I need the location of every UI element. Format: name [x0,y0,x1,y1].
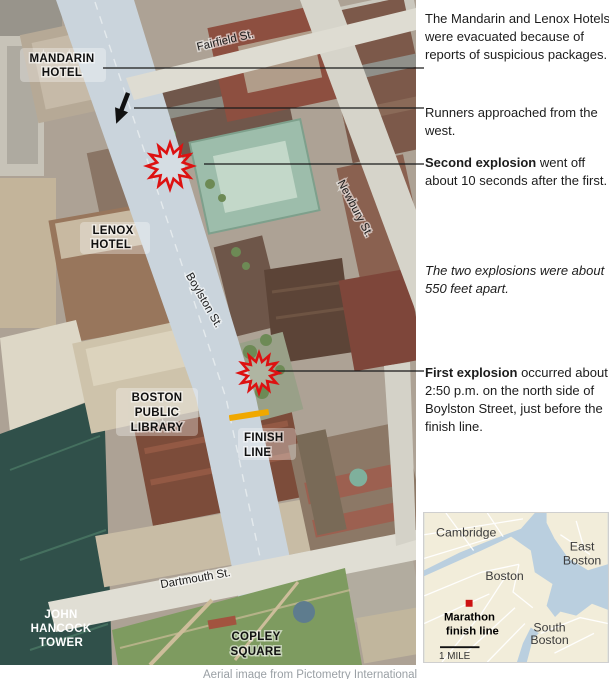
news-graphic: MANDARIN HOTEL LENOX HOTEL BOSTON PUBLIC… [0,0,609,679]
svg-text:HOTEL: HOTEL [91,239,131,251]
note-first-explosion: First explosion occurred about 2:50 p.m.… [425,364,609,436]
svg-text:TOWER: TOWER [39,637,83,649]
svg-text:HANCOCK: HANCOCK [31,623,92,635]
locator-inset-map: Cambridge Boston East Boston South Bosto… [423,512,609,663]
note-second-explosion: Second explosion went off about 10 secon… [425,154,609,190]
svg-text:PUBLIC: PUBLIC [135,407,180,419]
label-mandarin-hotel: MANDARIN [29,53,94,65]
label-copley-square: COPLEY [231,631,280,643]
inset-label-boston: Boston [485,569,524,583]
note-distance-apart: The two explosions were about 550 feet a… [425,262,609,298]
label-boston-public-library: BOSTON [132,392,183,404]
svg-text:SQUARE: SQUARE [230,646,281,658]
credit-caption: Aerial image from Pictometry Internation… [203,669,417,679]
inset-finish-marker [466,600,473,607]
inset-label-east-boston: East [570,539,595,553]
label-finish-line: FINISH [244,432,284,444]
svg-text:Boston: Boston [563,553,602,567]
label-lenox-hotel: LENOX [92,225,133,237]
label-john-hancock-tower: JOHN [44,609,77,621]
inset-label-marathon-finish: Marathon [444,612,495,624]
inset-label-cambridge: Cambridge [436,526,496,540]
svg-text:LIBRARY: LIBRARY [131,422,184,434]
svg-text:LINE: LINE [244,447,271,459]
svg-text:1 MILE: 1 MILE [439,651,471,662]
svg-text:HOTEL: HOTEL [42,67,82,79]
aerial-map: MANDARIN HOTEL LENOX HOTEL BOSTON PUBLIC… [0,0,416,665]
note-hotels-evacuated: The Mandarin and Lenox Hotels were evacu… [425,10,609,64]
svg-text:finish line: finish line [446,625,499,637]
note-runners-approach: Runners approached from the west. [425,104,609,140]
svg-text:Boston: Boston [530,633,569,647]
